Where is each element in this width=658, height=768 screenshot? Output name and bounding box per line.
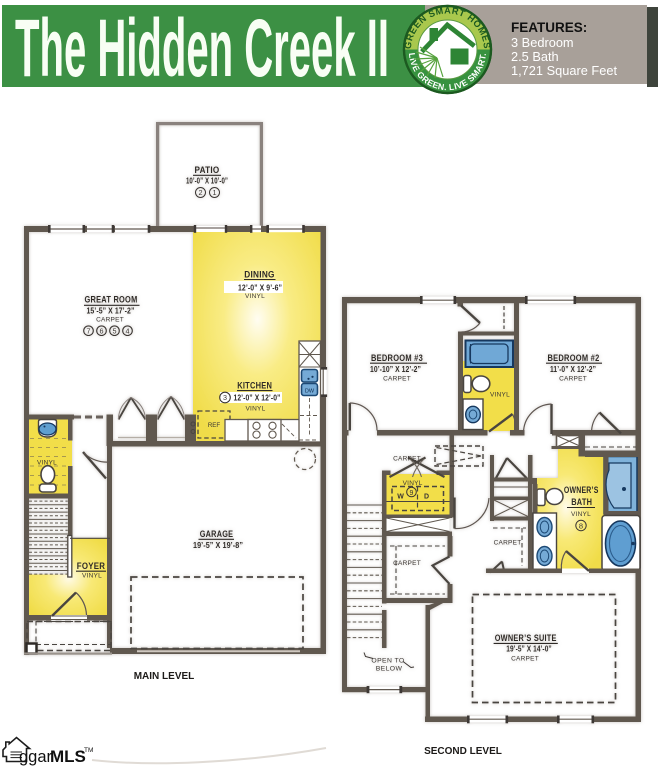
svg-text:OWNER’S: OWNER’S bbox=[564, 485, 599, 495]
svg-text:8: 8 bbox=[579, 521, 583, 530]
svg-text:BELOW: BELOW bbox=[376, 666, 403, 673]
svg-text:3: 3 bbox=[223, 393, 227, 402]
svg-text:7: 7 bbox=[87, 326, 91, 335]
svg-text:19’-5” X 14’-0”: 19’-5” X 14’-0” bbox=[506, 645, 552, 654]
svg-text:CARPET: CARPET bbox=[494, 540, 522, 547]
svg-text:1,721 Square Feet: 1,721 Square Feet bbox=[511, 63, 617, 78]
svg-text:DW: DW bbox=[305, 389, 315, 395]
svg-text:4: 4 bbox=[126, 326, 130, 335]
svg-text:OPEN TO: OPEN TO bbox=[371, 658, 404, 665]
svg-text:KITCHEN: KITCHEN bbox=[237, 380, 272, 390]
svg-text:REF: REF bbox=[208, 422, 221, 429]
svg-text:CARPET: CARPET bbox=[393, 456, 421, 463]
svg-text:VINYL: VINYL bbox=[403, 480, 423, 487]
svg-text:1: 1 bbox=[212, 188, 216, 197]
svg-text:3 Bedroom: 3 Bedroom bbox=[511, 35, 574, 50]
svg-text:VINYL: VINYL bbox=[37, 460, 57, 467]
svg-text:CARPET: CARPET bbox=[383, 375, 411, 382]
svg-text:9: 9 bbox=[410, 490, 414, 497]
svg-text:CARPET: CARPET bbox=[559, 375, 587, 382]
svg-text:VINYL: VINYL bbox=[82, 573, 102, 580]
svg-text:VINYL: VINYL bbox=[490, 392, 510, 399]
svg-text:12’-0” X 9’-6”: 12’-0” X 9’-6” bbox=[238, 284, 282, 293]
svg-text:19’-5” X 19’-8”: 19’-5” X 19’-8” bbox=[193, 541, 243, 550]
svg-text:CARPET: CARPET bbox=[393, 560, 421, 567]
svg-text:12’-0” X 12’-0”: 12’-0” X 12’-0” bbox=[234, 394, 281, 403]
svg-text:D: D bbox=[424, 494, 429, 501]
svg-text:CARPET: CARPET bbox=[511, 656, 539, 663]
svg-text:The Hidden Creek II: The Hidden Creek II bbox=[15, 3, 389, 94]
svg-text:VINYL: VINYL bbox=[571, 511, 591, 518]
svg-text:MLS: MLS bbox=[50, 747, 86, 766]
svg-text:PATIO: PATIO bbox=[195, 165, 220, 175]
svg-text:FOYER: FOYER bbox=[77, 561, 106, 571]
svg-text:GREAT ROOM: GREAT ROOM bbox=[85, 295, 138, 305]
svg-text:5: 5 bbox=[113, 326, 117, 335]
svg-text:BEDROOM #3: BEDROOM #3 bbox=[371, 353, 423, 363]
svg-text:10’-0” X 10’-0”: 10’-0” X 10’-0” bbox=[186, 177, 228, 186]
svg-text:W: W bbox=[397, 494, 404, 501]
svg-text:SECOND LEVEL: SECOND LEVEL bbox=[424, 746, 502, 757]
svg-text:2.5 Bath: 2.5 Bath bbox=[511, 49, 559, 64]
svg-text:11’-0” X 12’-2”: 11’-0” X 12’-2” bbox=[550, 365, 596, 374]
svg-text:CARPET: CARPET bbox=[96, 317, 124, 324]
svg-text:TM: TM bbox=[84, 747, 93, 754]
svg-text:BATH: BATH bbox=[571, 497, 592, 507]
svg-text:FEATURES:: FEATURES: bbox=[511, 20, 587, 35]
svg-text:10’-10” X 12’-2”: 10’-10” X 12’-2” bbox=[370, 365, 421, 374]
svg-text:6: 6 bbox=[100, 326, 104, 335]
svg-text:VINYL: VINYL bbox=[245, 406, 265, 413]
svg-text:DINING: DINING bbox=[244, 269, 275, 279]
svg-text:ggar: ggar bbox=[19, 748, 53, 766]
svg-text:GARAGE: GARAGE bbox=[200, 529, 234, 539]
svg-text:BEDROOM #2: BEDROOM #2 bbox=[548, 353, 600, 363]
svg-text:OWNER’S SUITE: OWNER’S SUITE bbox=[495, 633, 557, 643]
svg-text:2: 2 bbox=[198, 188, 202, 197]
svg-text:MAIN LEVEL: MAIN LEVEL bbox=[134, 671, 195, 682]
svg-text:VINYL: VINYL bbox=[245, 293, 265, 300]
svg-text:15’-5” X 17’-2”: 15’-5” X 17’-2” bbox=[87, 307, 135, 316]
